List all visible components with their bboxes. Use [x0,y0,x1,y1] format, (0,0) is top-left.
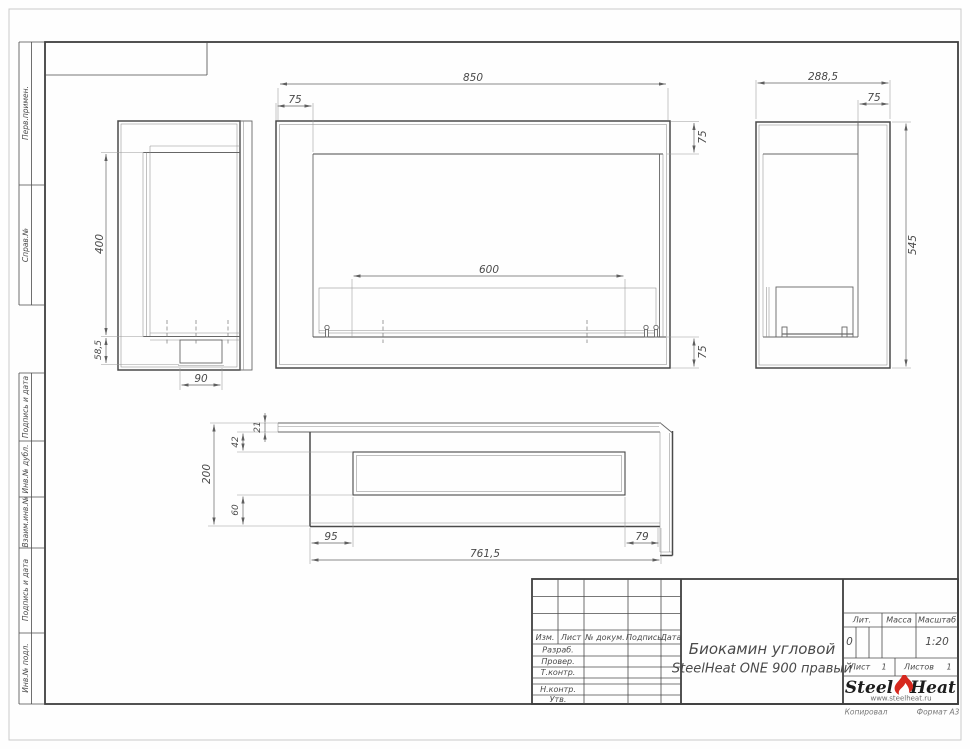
steelheat-logo: Steel Heat www.steelheat.ru [845,675,956,703]
margin-label: Инв.№ дубл. [21,445,30,494]
margin-column: Перв.примен. Справ.№ Подпись и дата Инв.… [19,42,45,704]
doc-title-line1: Биокамин угловой [689,640,836,658]
tray-profile [180,340,222,363]
dim-top-depth: 200 [201,464,213,484]
dim-left-tray-width: 90 [194,373,208,385]
dim-left-glass-height: 400 [94,234,106,254]
dim-front-top-frame: 75 [697,130,709,144]
dim-right-frame: 75 [867,92,881,104]
rev-col-list: Лист [560,633,582,642]
sheet-label: Лист [849,663,871,672]
burner-clips [325,325,658,337]
drawing-canvas: Перв.примен. Справ.№ Подпись и дата Инв.… [0,0,970,749]
sheets-value: 1 [946,663,951,672]
margin-label: Подпись и дата [21,559,30,622]
rev-col-signature: Подпись [626,633,662,642]
staff-nkontr: Н.контр. [540,685,576,694]
dim-top-length: 761,5 [470,548,500,560]
margin-label: Подпись и дата [21,376,30,439]
burner-trough [319,288,656,333]
dim-right-height: 545 [907,235,919,255]
right-side-view: 288,5 75 545 [756,71,919,368]
copied-label: Копировал [845,708,888,717]
dim-top-front-inset: 42 [231,436,241,448]
dim-front-left-offset: 75 [288,94,302,106]
dim-right-depth: 288,5 [808,71,838,83]
sheets-label: Листов [903,663,934,672]
margin-label: Перв.примен. [21,86,30,140]
front-view-outline [276,121,670,368]
top-left-graph [45,42,207,75]
lit-value: 0 [846,636,853,648]
margin-label: Справ.№ [21,228,30,262]
lit-label: Лит. [852,616,871,625]
staff-razrab: Разраб. [542,646,573,655]
scale-label: Масштаб [918,616,956,625]
dim-front-burner: 600 [479,264,499,276]
dim-top-back-inset: 60 [231,504,241,516]
dim-left-base-height: 58,5 [94,340,104,360]
staff-utv: Утв. [550,695,567,704]
front-view: 850 75 75 600 75 [276,72,709,368]
staff-prover: Провер. [541,657,574,666]
rev-col-izm: Изм. [536,633,555,642]
margin-label: Взаим.инв.№ [21,496,30,547]
staff-tkontr: Т.контр. [541,668,576,677]
dim-front-bottom-frame: 75 [697,345,709,359]
dim-top-right-offset: 79 [635,531,649,543]
drawing-sheet: Перв.примен. Справ.№ Подпись и дата Инв.… [0,0,970,749]
dim-top-left-offset: 95 [324,531,338,543]
logo-url: www.steelheat.ru [870,695,931,703]
mass-label: Масса [886,616,912,625]
format-label: Формат А3 [917,708,960,717]
sheet-value: 1 [881,663,886,672]
scale-value: 1:20 [925,636,949,648]
margin-label: Инв.№ подл. [21,643,30,692]
sheet-frame [9,9,961,740]
left-view-outline [118,121,240,370]
dim-front-width: 850 [463,72,483,84]
rev-col-docnum: № докум. [584,633,624,642]
title-block: Изм. Лист № докум. Подпись Дата Разраб. … [532,579,960,717]
rev-col-date: Дата [660,633,682,642]
doc-title-line2: SteelHeat ONE 900 правый [672,662,852,677]
top-view: 21 42 200 60 95 761,5 79 [201,413,673,564]
dim-top-wall-gap: 21 [253,421,263,432]
burner-box [776,287,853,337]
left-side-view: 400 58,5 90 [94,121,252,390]
inner-frame [45,42,958,704]
burner-slot [353,452,625,495]
